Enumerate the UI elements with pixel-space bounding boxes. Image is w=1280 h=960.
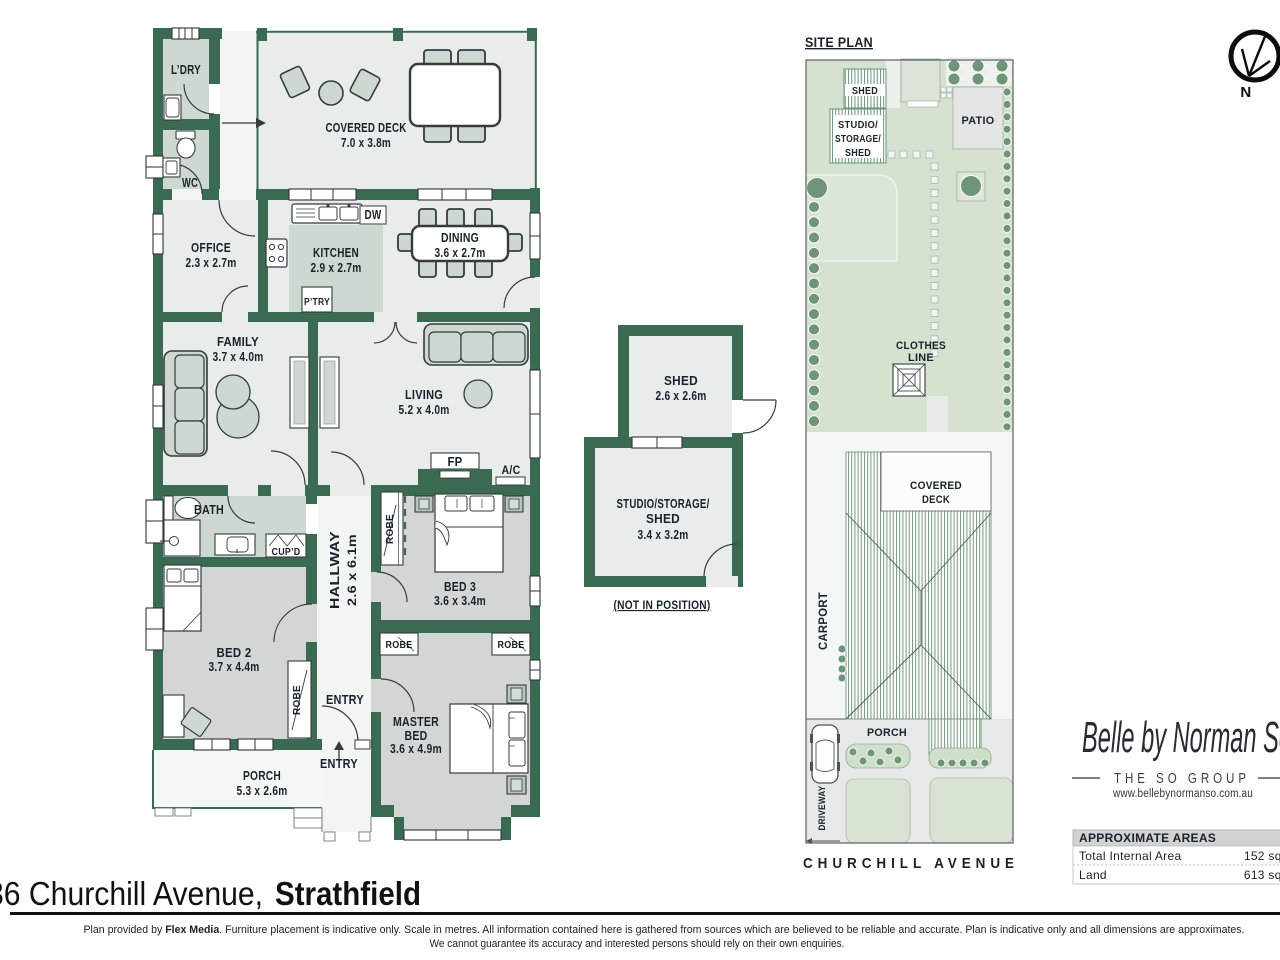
svg-text:5.2 x 4.0m: 5.2 x 4.0m xyxy=(399,403,450,417)
svg-text:We cannot guarantee its accura: We cannot guarantee its accuracy and int… xyxy=(430,938,845,950)
svg-text:APPROXIMATE AREAS: APPROXIMATE AREAS xyxy=(1079,831,1216,845)
svg-text:7.0 x 3.8m: 7.0 x 3.8m xyxy=(341,136,391,150)
svg-text:WC: WC xyxy=(182,175,198,190)
svg-text:ENTRY: ENTRY xyxy=(320,756,358,771)
svg-text:HALLWAY: HALLWAY xyxy=(328,531,342,609)
svg-text:CUP’D: CUP’D xyxy=(272,546,301,558)
svg-text:3.6 x 2.7m: 3.6 x 2.7m xyxy=(435,246,486,260)
svg-text:ROBE: ROBE xyxy=(386,640,413,651)
svg-text:152 sqm: 152 sqm xyxy=(1244,849,1280,863)
svg-text:ROBE: ROBE xyxy=(291,685,303,715)
svg-text:Land: Land xyxy=(1079,868,1107,882)
svg-text:STUDIO/: STUDIO/ xyxy=(838,120,878,131)
svg-text:PORCH: PORCH xyxy=(867,727,907,739)
svg-text:SHED: SHED xyxy=(664,373,698,388)
svg-text:Belle by Norman So: Belle by Norman So xyxy=(1082,713,1280,762)
svg-text:BED 2: BED 2 xyxy=(217,645,252,660)
svg-text:DW: DW xyxy=(365,208,382,222)
svg-text:Plan provided by Flex Media. F: Plan provided by Flex Media. Furniture p… xyxy=(84,924,1245,936)
svg-text:2.3 x 2.7m: 2.3 x 2.7m xyxy=(186,256,237,270)
svg-text:3.4 x 3.2m: 3.4 x 3.2m xyxy=(638,528,689,542)
svg-text:PATIO: PATIO xyxy=(962,115,995,127)
svg-text:THE SO GROUP: THE SO GROUP xyxy=(1114,771,1250,787)
svg-text:LINE: LINE xyxy=(908,352,934,364)
svg-text:FAMILY: FAMILY xyxy=(217,334,259,349)
svg-text:N: N xyxy=(1240,84,1251,101)
svg-text:P’TRY: P’TRY xyxy=(304,296,330,308)
svg-text:613 sqm: 613 sqm xyxy=(1244,868,1280,882)
svg-text:3.6 x 4.9m: 3.6 x 4.9m xyxy=(390,742,442,756)
svg-text:STORAGE/: STORAGE/ xyxy=(835,134,881,145)
svg-text:3.7 x 4.0m: 3.7 x 4.0m xyxy=(213,350,264,364)
svg-text:DECK: DECK xyxy=(922,494,950,506)
svg-text:Total Internal Area: Total Internal Area xyxy=(1079,849,1181,863)
svg-text:Strathfield: Strathfield xyxy=(275,875,421,912)
svg-text:3.6 x 3.4m: 3.6 x 3.4m xyxy=(434,594,486,608)
svg-text:www.bellebynormanso.com.au: www.bellebynormanso.com.au xyxy=(1112,788,1253,800)
svg-text:ENTRY: ENTRY xyxy=(326,692,364,707)
svg-text:OFFICE: OFFICE xyxy=(191,240,231,255)
svg-text:CLOTHES: CLOTHES xyxy=(896,340,946,352)
svg-text:A/C: A/C xyxy=(502,465,521,477)
svg-text:COVERED: COVERED xyxy=(910,480,962,492)
svg-text:(NOT IN POSITION): (NOT IN POSITION) xyxy=(614,600,711,612)
svg-text:2.6 x 2.6m: 2.6 x 2.6m xyxy=(656,389,707,403)
svg-text:L’DRY: L’DRY xyxy=(171,62,201,77)
svg-text:SHED: SHED xyxy=(852,86,878,97)
svg-text:ROBE: ROBE xyxy=(384,514,396,544)
svg-text:SHED: SHED xyxy=(646,511,680,526)
svg-text:36 Churchill Avenue,: 36 Churchill Avenue, xyxy=(0,875,263,912)
svg-text:ROBE: ROBE xyxy=(498,640,525,651)
svg-text:CHURCHILL AVENUE: CHURCHILL AVENUE xyxy=(803,855,1019,872)
svg-text:SHED: SHED xyxy=(845,148,871,159)
svg-text:DINING: DINING xyxy=(441,230,479,245)
svg-text:5.3 x 2.6m: 5.3 x 2.6m xyxy=(237,784,288,798)
svg-text:2.6 x 6.1m: 2.6 x 6.1m xyxy=(345,534,359,606)
svg-text:BATH: BATH xyxy=(194,502,224,517)
svg-text:DRIVEWAY: DRIVEWAY xyxy=(817,786,827,831)
svg-text:MASTER: MASTER xyxy=(393,714,439,729)
svg-text:STUDIO/STORAGE/: STUDIO/STORAGE/ xyxy=(617,496,710,511)
svg-text:2.9 x 2.7m: 2.9 x 2.7m xyxy=(311,261,362,275)
svg-text:SITE PLAN: SITE PLAN xyxy=(805,35,873,50)
svg-text:COVERED DECK: COVERED DECK xyxy=(326,120,407,135)
svg-text:BED 3: BED 3 xyxy=(444,579,476,594)
svg-text:BED: BED xyxy=(405,728,428,743)
svg-text:LIVING: LIVING xyxy=(405,387,443,402)
svg-text:FP: FP xyxy=(448,455,463,469)
svg-text:CARPORT: CARPORT xyxy=(816,592,830,650)
svg-text:PORCH: PORCH xyxy=(243,768,281,783)
svg-text:KITCHEN: KITCHEN xyxy=(313,245,359,260)
svg-text:3.7 x 4.4m: 3.7 x 4.4m xyxy=(209,660,260,674)
